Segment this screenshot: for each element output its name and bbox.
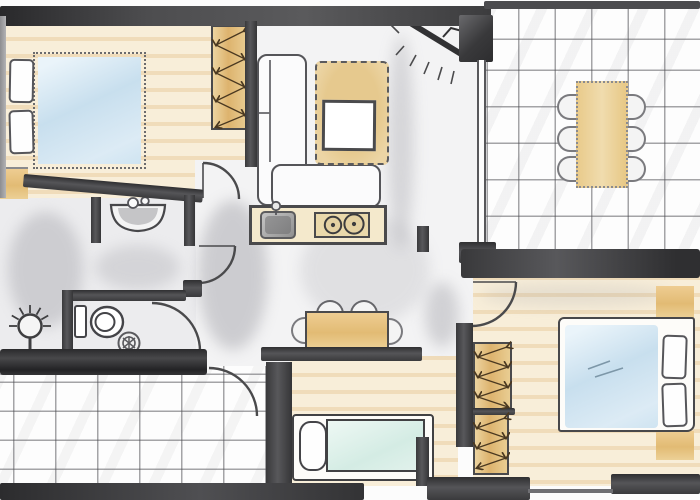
nightstand [656,431,694,460]
wall-partition-dining [477,60,486,245]
pillow [299,421,327,471]
window-sill [528,489,613,493]
pillow [661,383,688,428]
chair [557,126,576,152]
wardrobe [211,25,249,130]
nightstand [656,286,694,318]
wall-utility-right [266,362,292,490]
kitchen-sink-basin [265,216,291,234]
wardrobe [473,413,509,475]
wall-living-stub [417,226,429,252]
wall-bedroom-sm-top [261,347,422,361]
coffee-table [322,100,376,151]
wardrobe-divider-wall [468,408,515,415]
wall-tv-corner [459,15,493,62]
wall-bottom-left [0,483,364,500]
stove [314,212,370,238]
wall-bathroom-right [184,195,195,246]
single-bed-blanket [326,419,425,472]
wall-wc-top [62,290,186,301]
double-bed-mattress [38,57,141,164]
wardrobe [473,342,512,410]
wall-left [0,16,6,198]
sofa-section-horizontal [271,164,381,208]
wall-bedrooms-divider [456,323,473,447]
dining-table [576,81,628,188]
pillow [661,335,688,380]
chair [557,94,576,120]
wall-basin-niche-left [91,197,101,243]
wall-wc-left [62,290,73,352]
double-bed-mattress [565,325,658,428]
wall-top-dining [484,1,700,9]
floor-utility-tiled-room [0,366,270,490]
floor-plan-canvas [0,0,700,500]
chair [557,156,576,182]
small-dining-table [305,311,389,351]
wall-bottom-middle [427,477,530,500]
wall-bottom-right [611,474,700,494]
wall-thick-bathroom [0,349,207,375]
pillow [8,110,34,155]
wall-bedroom-tl-right [245,21,257,167]
pillow [9,59,35,103]
wall-southeast [461,249,700,278]
